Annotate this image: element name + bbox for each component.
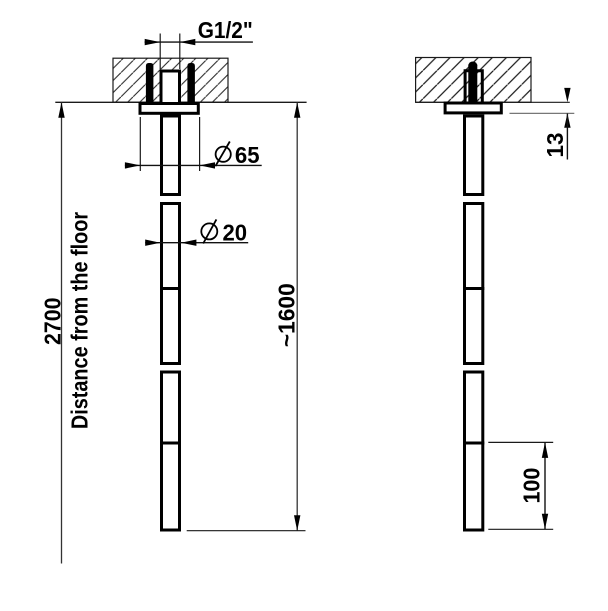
- svg-text:20: 20: [223, 220, 248, 246]
- svg-text:13: 13: [542, 133, 568, 158]
- svg-text:G1/2": G1/2": [198, 17, 253, 43]
- svg-text:2700: 2700: [39, 297, 65, 345]
- svg-text:Distance from the floor: Distance from the floor: [67, 212, 93, 429]
- svg-text:100: 100: [518, 468, 544, 504]
- svg-text:~1600: ~1600: [273, 283, 299, 347]
- svg-text:65: 65: [235, 142, 260, 168]
